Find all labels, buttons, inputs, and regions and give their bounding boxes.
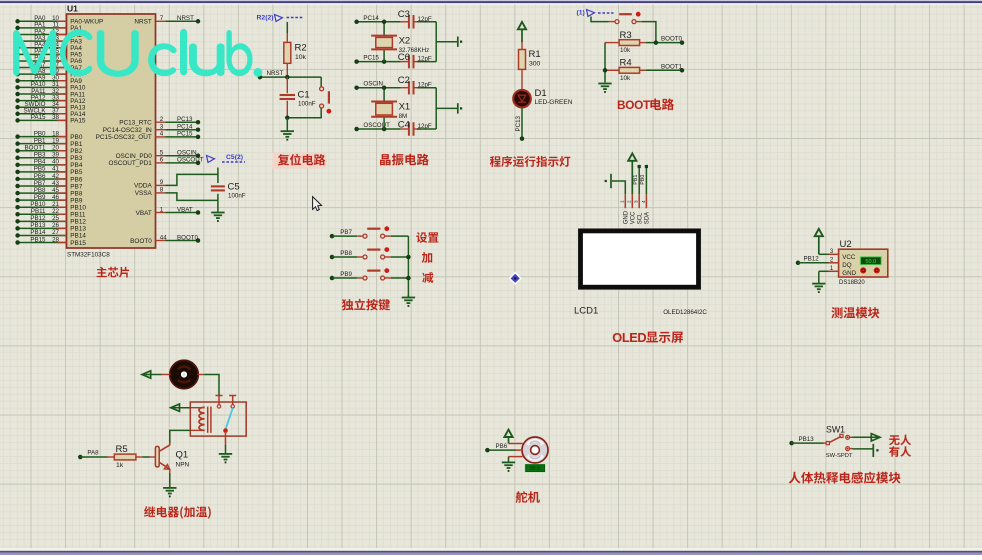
svg-text:19: 19: [52, 137, 59, 144]
svg-text:40: 40: [52, 159, 59, 166]
svg-text:46: 46: [52, 194, 59, 201]
svg-text:BOOT0: BOOT0: [130, 238, 152, 245]
svg-text:PB13: PB13: [799, 436, 815, 443]
svg-text:C3: C3: [398, 9, 410, 20]
svg-text:NRST: NRST: [267, 70, 284, 77]
svg-text:X1: X1: [399, 102, 411, 113]
svg-text:25: 25: [52, 215, 59, 222]
svg-text:PB9: PB9: [34, 194, 46, 201]
svg-text:PB13: PB13: [30, 222, 46, 229]
svg-text:VCC: VCC: [842, 254, 856, 261]
svg-text:PC14: PC14: [363, 15, 379, 22]
svg-text:2: 2: [160, 116, 164, 123]
svg-text:LCD1: LCD1: [574, 306, 598, 317]
svg-text:PB0: PB0: [70, 134, 83, 141]
svg-text:C5(2): C5(2): [226, 154, 243, 161]
svg-text:7: 7: [160, 15, 164, 22]
svg-text:GND: GND: [624, 210, 630, 224]
svg-text:PB3: PB3: [34, 152, 46, 159]
svg-text:100nF: 100nF: [298, 100, 316, 107]
svg-text:BOOT0: BOOT0: [661, 36, 683, 43]
svg-text:9: 9: [160, 179, 164, 186]
svg-text:PC13: PC13: [177, 116, 193, 123]
svg-text:R2(2): R2(2): [257, 15, 274, 22]
svg-text:PB15: PB15: [30, 236, 46, 243]
svg-text:X2: X2: [399, 36, 411, 47]
svg-text:PC15: PC15: [363, 55, 379, 62]
svg-text:LED-GREEN: LED-GREEN: [535, 99, 573, 106]
svg-text:C5: C5: [228, 182, 240, 193]
svg-text:PB13: PB13: [70, 226, 86, 233]
svg-text:R5: R5: [116, 444, 128, 455]
svg-text:VBAT: VBAT: [136, 210, 152, 217]
svg-text:300: 300: [529, 61, 541, 68]
svg-text:VBAT: VBAT: [177, 206, 193, 213]
svg-text:PA15: PA15: [31, 114, 46, 121]
svg-text:NRST: NRST: [134, 19, 151, 26]
svg-text:PB10: PB10: [70, 205, 86, 212]
svg-text:10k: 10k: [620, 75, 631, 82]
svg-text:12pF: 12pF: [418, 55, 432, 62]
svg-text:PB6: PB6: [496, 443, 508, 450]
svg-text:PB15: PB15: [70, 240, 86, 247]
svg-text:OSCIN: OSCIN: [177, 150, 197, 157]
svg-text:PC14: PC14: [177, 124, 193, 131]
svg-text:PB6: PB6: [70, 176, 83, 183]
svg-text:VCC: VCC: [631, 211, 637, 224]
svg-text:SW-SPDT: SW-SPDT: [826, 453, 853, 459]
svg-text:OSCOUT: OSCOUT: [363, 122, 390, 129]
svg-text:100nF: 100nF: [228, 193, 246, 200]
svg-text:4: 4: [641, 200, 646, 203]
svg-text:R4: R4: [620, 58, 632, 69]
svg-text:PB14: PB14: [30, 229, 46, 236]
svg-text:OLED: OLED: [612, 330, 646, 345]
svg-text:PB8: PB8: [34, 187, 46, 194]
svg-text:2: 2: [627, 200, 632, 203]
svg-text:PB9: PB9: [70, 197, 83, 204]
svg-text:SW1: SW1: [826, 424, 845, 434]
svg-text:21: 21: [52, 201, 59, 208]
svg-text:U2: U2: [840, 239, 852, 250]
svg-text:22: 22: [52, 208, 59, 215]
svg-text:18: 18: [52, 130, 59, 137]
svg-text:PB1: PB1: [34, 137, 46, 144]
svg-text:BOOT0: BOOT0: [177, 234, 199, 241]
svg-text:PB11: PB11: [31, 208, 46, 215]
svg-text:OSCOUT: OSCOUT: [177, 157, 204, 164]
svg-text:DS18B20: DS18B20: [839, 280, 865, 286]
svg-text:NPN: NPN: [176, 461, 190, 468]
svg-text:VDDA: VDDA: [134, 183, 152, 190]
svg-text:PB11: PB11: [70, 212, 86, 219]
svg-text:PB1: PB1: [633, 175, 639, 185]
svg-text:PB8: PB8: [340, 250, 352, 257]
svg-text:PB4: PB4: [34, 159, 46, 166]
svg-text:20: 20: [52, 145, 59, 152]
svg-text:BOOT: BOOT: [617, 98, 651, 112]
svg-text:12pF: 12pF: [418, 16, 432, 23]
svg-text:39: 39: [52, 152, 59, 159]
svg-text:C1: C1: [298, 90, 310, 101]
svg-text:PB0: PB0: [640, 175, 646, 185]
svg-text:VSSA: VSSA: [135, 190, 153, 197]
svg-text:PB6: PB6: [34, 173, 46, 180]
svg-text:50.0: 50.0: [865, 259, 876, 265]
svg-text:NRST: NRST: [177, 15, 194, 22]
svg-text:BOOT1: BOOT1: [661, 63, 683, 70]
svg-text:R2: R2: [295, 43, 307, 54]
svg-text:PB8: PB8: [70, 190, 83, 197]
svg-text:PB7: PB7: [34, 180, 46, 187]
svg-text:PA8: PA8: [87, 450, 99, 457]
svg-text:Q1: Q1: [176, 449, 189, 460]
svg-text:OLED12864I2C: OLED12864I2C: [663, 309, 707, 316]
svg-text:OSCOUT_PD1: OSCOUT_PD1: [108, 160, 152, 167]
svg-text:1: 1: [160, 206, 164, 213]
svg-text:12pF: 12pF: [418, 82, 432, 89]
svg-text:PB14: PB14: [70, 233, 86, 240]
svg-text:PC13_RTC: PC13_RTC: [119, 120, 152, 127]
svg-text:38: 38: [52, 114, 59, 121]
svg-text:OSCIN: OSCIN: [363, 81, 383, 88]
svg-text:PB12: PB12: [804, 256, 820, 263]
svg-text:PB7: PB7: [340, 229, 352, 236]
svg-text:1: 1: [620, 200, 625, 203]
svg-text:27: 27: [52, 229, 59, 236]
svg-text:PB2: PB2: [70, 148, 83, 155]
svg-text:3: 3: [160, 124, 164, 131]
svg-text:PB4: PB4: [70, 162, 83, 169]
svg-text:PB9: PB9: [340, 271, 352, 278]
svg-text:28: 28: [52, 236, 59, 243]
svg-text:PC13: PC13: [515, 115, 522, 131]
svg-text:PB5: PB5: [34, 166, 46, 173]
svg-text:41: 41: [52, 166, 59, 173]
svg-text:42: 42: [52, 173, 59, 180]
svg-text:PB1: PB1: [70, 141, 83, 148]
svg-text:5: 5: [160, 150, 164, 157]
svg-text:PC14-OSC32_IN: PC14-OSC32_IN: [103, 127, 152, 134]
svg-text:PA15: PA15: [70, 118, 86, 125]
svg-text:PC15: PC15: [177, 131, 193, 138]
svg-text:R3: R3: [620, 30, 632, 41]
svg-text:43: 43: [52, 180, 59, 187]
svg-text:PB5: PB5: [70, 169, 83, 176]
svg-text:PC15-OSC32_OUT: PC15-OSC32_OUT: [96, 134, 152, 141]
svg-text:OSCIN_PD0: OSCIN_PD0: [116, 153, 153, 160]
svg-text:26: 26: [52, 222, 59, 229]
svg-text:PB12: PB12: [30, 215, 46, 222]
svg-text:C2: C2: [398, 75, 410, 86]
svg-text:PB0: PB0: [34, 130, 46, 137]
svg-text:DQ: DQ: [842, 262, 851, 269]
svg-text:(1): (1): [577, 10, 585, 17]
svg-text:8: 8: [160, 187, 164, 194]
svg-text:PB7: PB7: [70, 183, 83, 190]
svg-text:PB10: PB10: [30, 201, 46, 208]
svg-text:10k: 10k: [295, 54, 307, 61]
svg-text:GND: GND: [842, 270, 856, 277]
svg-text:U1: U1: [67, 4, 78, 14]
svg-text:PB3: PB3: [70, 155, 83, 162]
svg-text:12pF: 12pF: [418, 123, 432, 130]
svg-text:3: 3: [634, 200, 639, 203]
svg-text:D1: D1: [535, 88, 547, 99]
svg-text:1k: 1k: [116, 462, 124, 469]
svg-text:C4: C4: [398, 120, 410, 131]
svg-text:BOOT1: BOOT1: [25, 145, 47, 152]
svg-text:C6: C6: [398, 52, 410, 63]
svg-text:4: 4: [160, 131, 164, 138]
svg-text:PB12: PB12: [70, 219, 86, 226]
svg-text:45: 45: [52, 187, 59, 194]
svg-text:6: 6: [160, 157, 164, 164]
svg-text:STM32F103C8: STM32F103C8: [67, 252, 110, 259]
svg-text:10k: 10k: [620, 47, 631, 54]
svg-text:88.8: 88.8: [530, 466, 540, 472]
svg-text:SDA: SDA: [645, 212, 651, 224]
svg-text:SCL: SCL: [637, 212, 643, 224]
svg-text:R1: R1: [529, 49, 541, 60]
